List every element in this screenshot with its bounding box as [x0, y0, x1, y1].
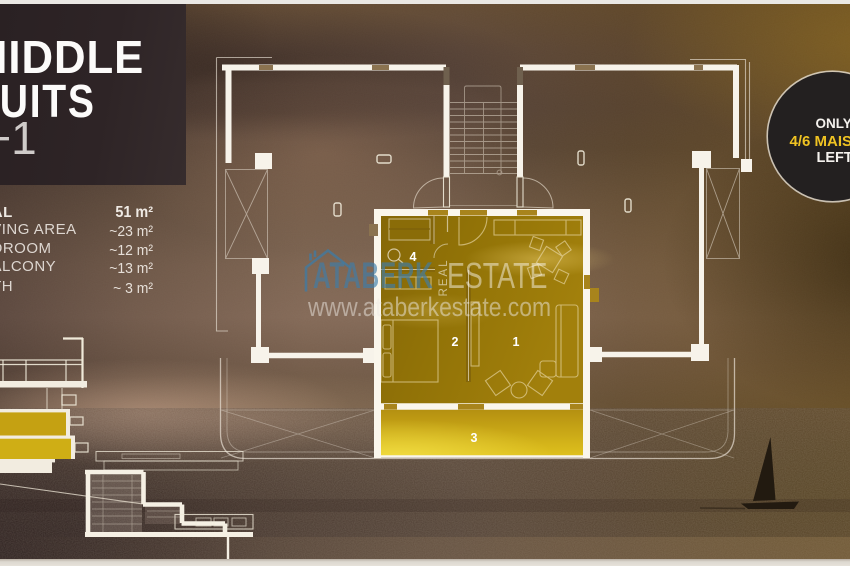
svg-text:3: 3 — [471, 431, 478, 445]
svg-text:2: 2 — [452, 335, 459, 349]
svg-text:1: 1 — [513, 335, 520, 349]
